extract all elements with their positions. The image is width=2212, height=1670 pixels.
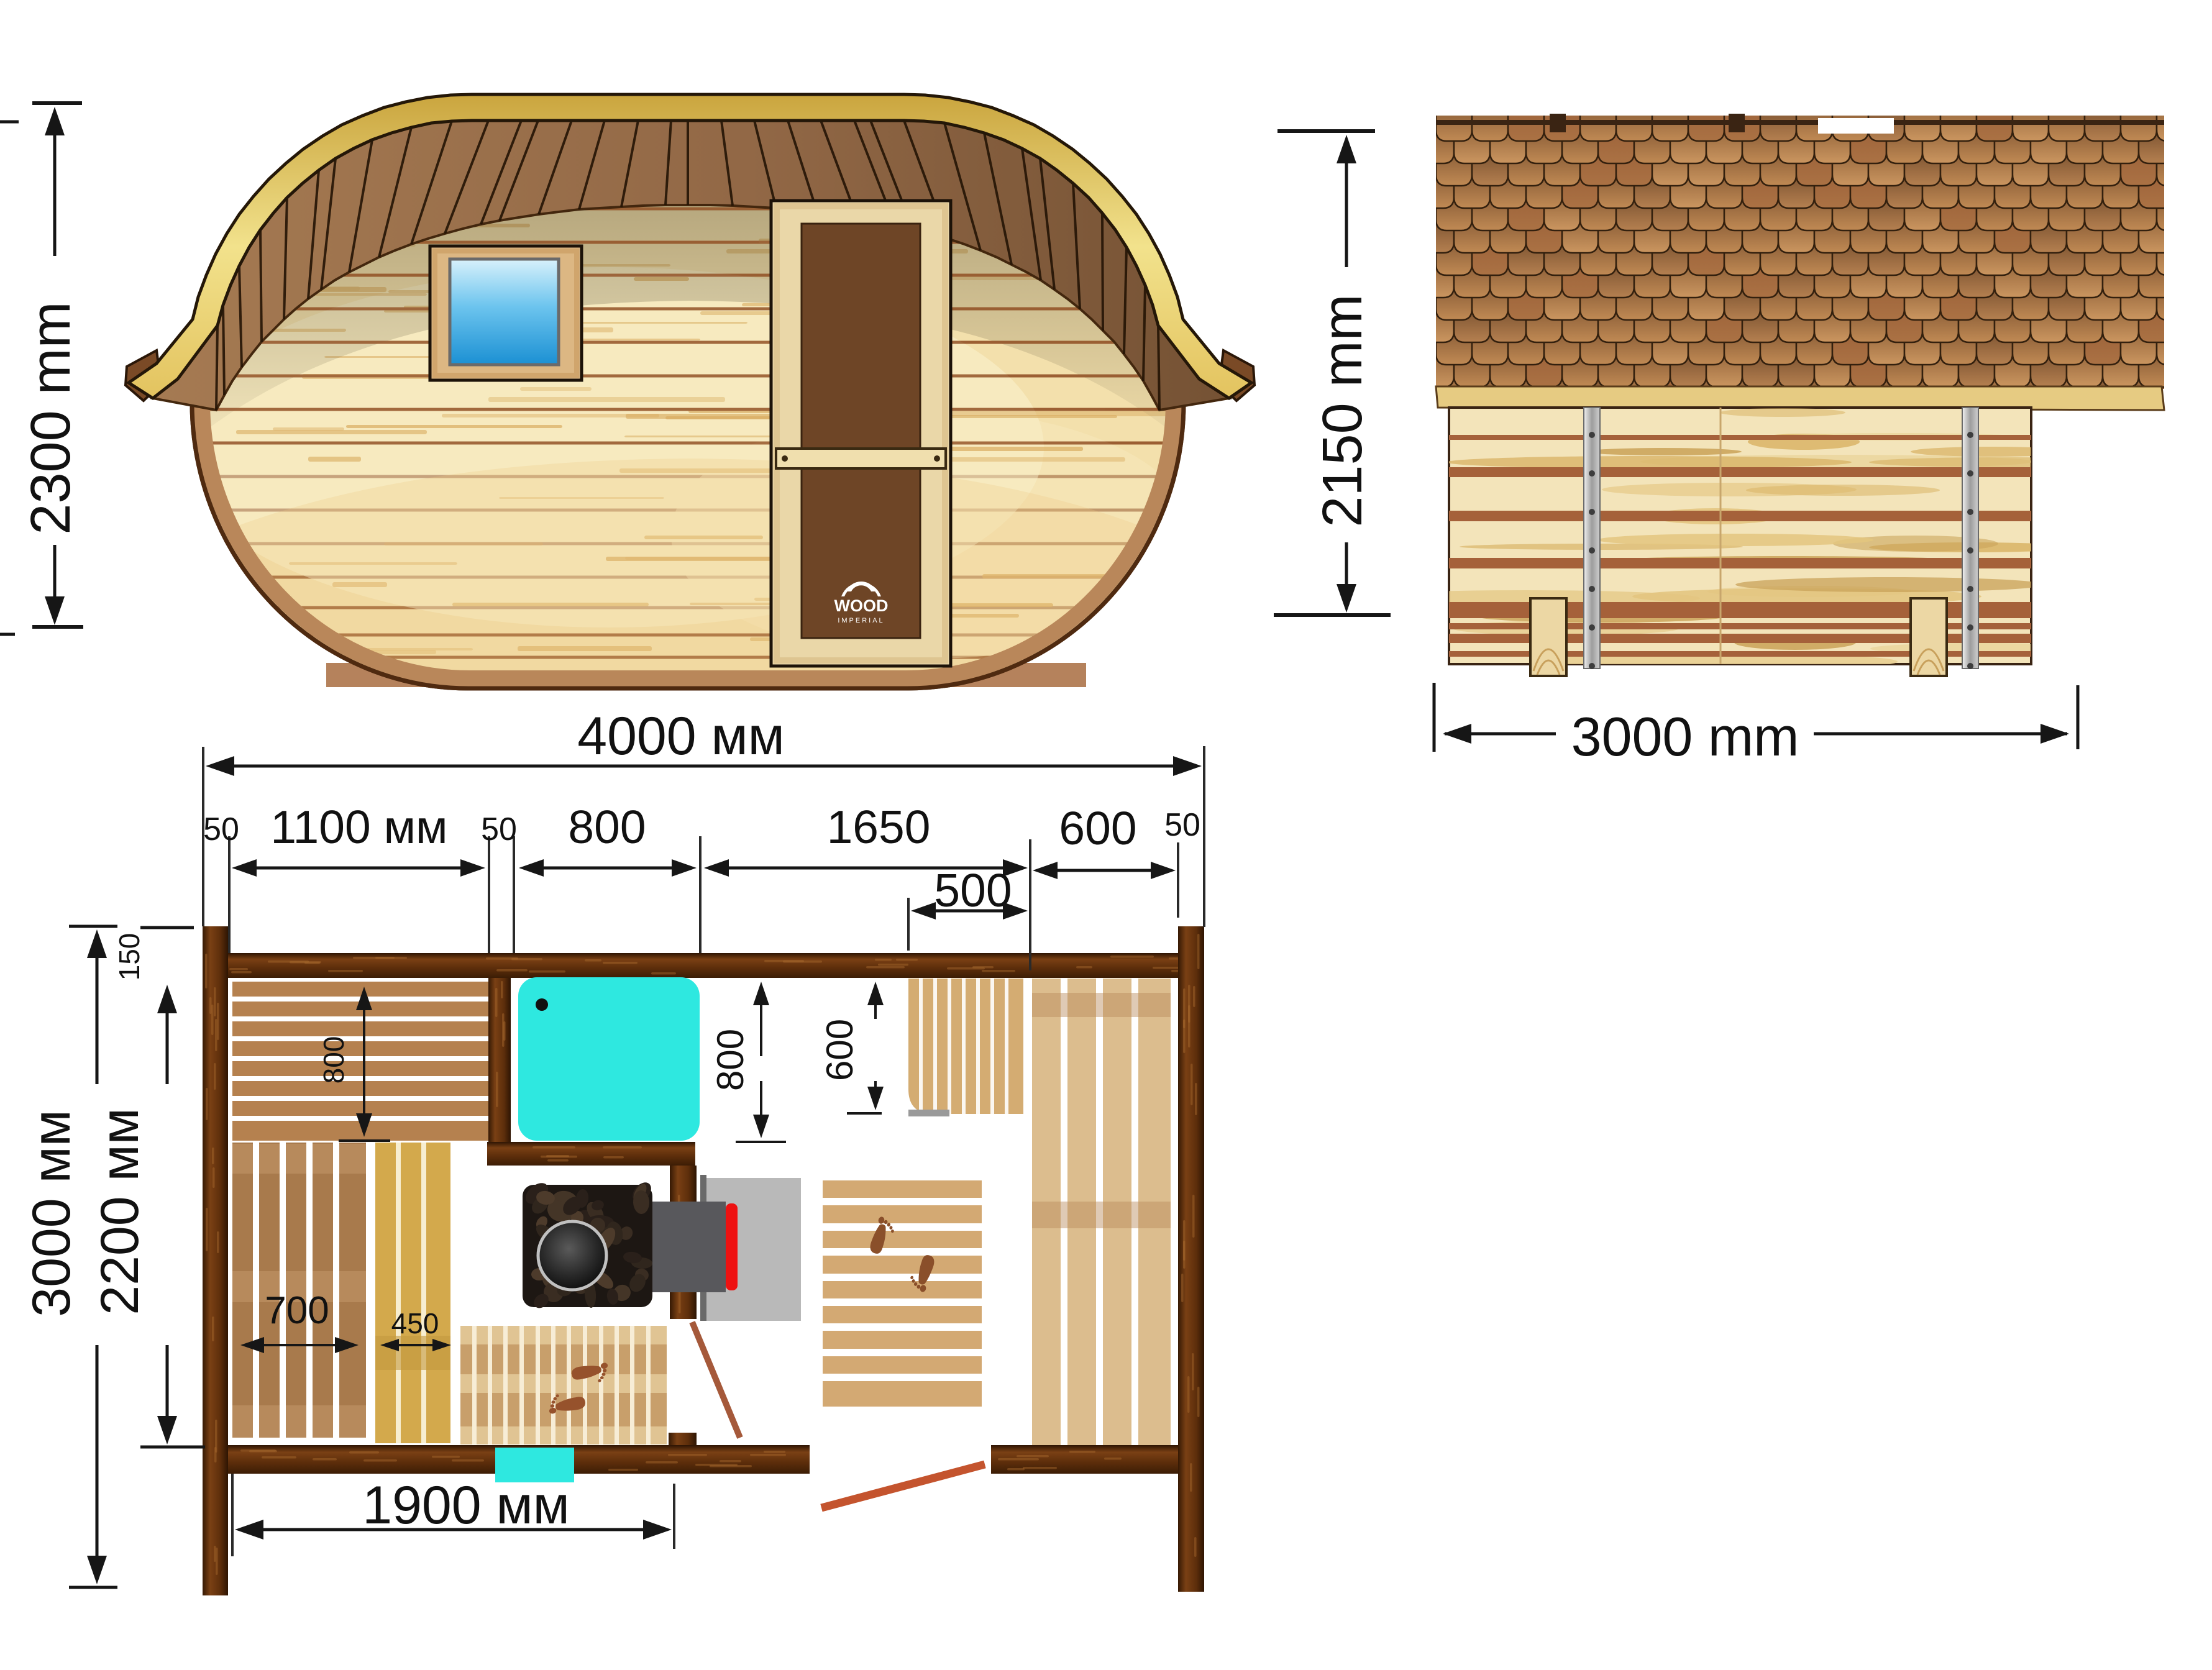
svg-text:150: 150 xyxy=(113,933,145,981)
svg-text:1650: 1650 xyxy=(827,801,931,853)
svg-text:IMPERIAL: IMPERIAL xyxy=(838,617,884,624)
svg-text:3000 mm: 3000 mm xyxy=(1571,706,1799,767)
svg-text:50: 50 xyxy=(1164,807,1200,843)
svg-text:WOOD: WOOD xyxy=(834,596,889,615)
svg-text:600: 600 xyxy=(1059,802,1136,854)
svg-text:600: 600 xyxy=(819,1019,861,1081)
svg-text:50: 50 xyxy=(481,811,517,847)
svg-text:700: 700 xyxy=(265,1289,329,1332)
svg-text:1900 мм: 1900 мм xyxy=(362,1476,569,1535)
svg-text:2150 mm: 2150 mm xyxy=(1312,294,1374,527)
svg-text:450: 450 xyxy=(391,1307,439,1339)
svg-text:800: 800 xyxy=(710,1029,751,1091)
svg-text:800: 800 xyxy=(568,801,646,853)
svg-text:2200 мм: 2200 мм xyxy=(90,1108,150,1315)
svg-text:3000 мм: 3000 мм xyxy=(22,1110,81,1316)
svg-text:1100 мм: 1100 мм xyxy=(270,801,447,853)
svg-text:4000 мм: 4000 мм xyxy=(577,706,784,766)
svg-text:800: 800 xyxy=(318,1036,350,1084)
svg-text:2300 mm: 2300 mm xyxy=(20,301,82,534)
svg-text:500: 500 xyxy=(934,864,1012,916)
svg-text:50: 50 xyxy=(203,811,239,847)
